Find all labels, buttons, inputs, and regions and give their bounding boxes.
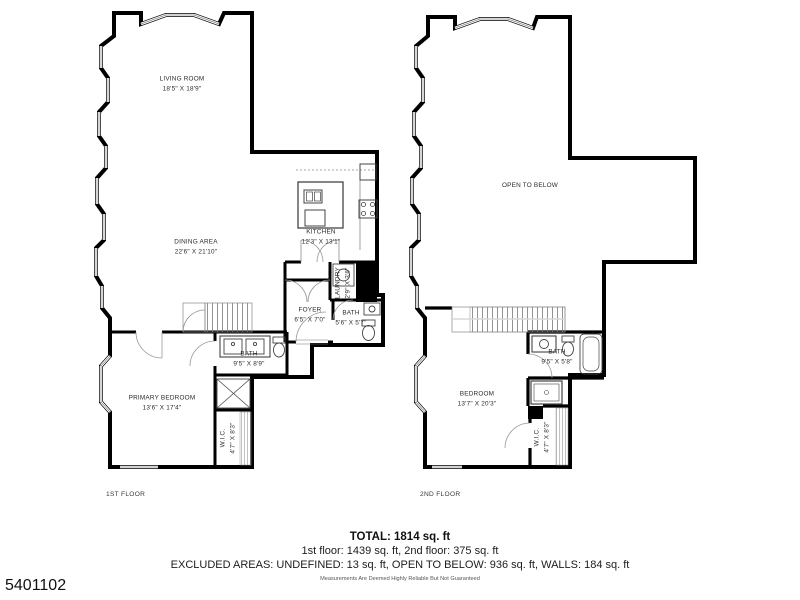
room-label-laundry: LAUNDRY 2'9" X 3'6" [333, 267, 352, 299]
room-label-open-to-below: OPEN TO BELOW [502, 181, 558, 191]
room-label-dining: DINING AREA 22'6" X 21'10" [174, 237, 217, 256]
room-label-primary-bedroom: PRIMARY BEDROOM 13'6" X 17'4" [129, 393, 196, 412]
excluded-areas: EXCLUDED AREAS: UNDEFINED: 13 sq. ft, OP… [0, 559, 800, 571]
exterior-wall [411, 17, 695, 467]
floor-name-2: 2ND FLOOR [420, 491, 460, 498]
door-arc [183, 310, 205, 332]
bedroom-door-arc [136, 332, 162, 358]
room-label-wic-2: W.I.C. 4'7" X 8'3" [532, 421, 551, 452]
shower-stall [531, 381, 562, 404]
total-area: TOTAL: 1814 sq. ft [0, 531, 800, 543]
room-label-bath-small: BATH 5'6" X 5'7" [335, 308, 366, 327]
wall-block-wic [528, 406, 543, 419]
wic-shelves [556, 408, 568, 465]
fridge [360, 164, 376, 180]
photo-id: 5401102 [5, 577, 66, 595]
second-floor-plan [411, 17, 695, 467]
room-label-bedroom-2: BEDROOM 13'7" X 20'3" [458, 389, 497, 408]
area-summary: TOTAL: 1814 sq. ft 1st floor: 1439 sq. f… [0, 531, 800, 582]
room-label-wic-1: W.I.C. 4'7" X 8'3" [218, 422, 237, 453]
floor-areas: 1st floor: 1439 sq. ft, 2nd floor: 375 s… [0, 545, 800, 557]
wall-block-laundry [356, 262, 377, 302]
room-label-foyer: FOYER 6'5" X 7'0" [294, 305, 325, 324]
room-label-living: LIVING ROOM 18'5" X 18'9" [160, 74, 205, 93]
door-arc [190, 341, 215, 366]
floor-plan-canvas [0, 0, 800, 600]
closet-door-arcs [285, 280, 330, 302]
stairs [183, 303, 252, 332]
floor-name-1: 1ST FLOOR [106, 491, 145, 498]
toilet-icon [273, 337, 285, 357]
range-icon [359, 200, 377, 218]
room-label-kitchen: KITCHEN 12'3" X 13'1" [302, 227, 341, 246]
room-label-bath-main: BATH 9'5" X 8'9" [233, 349, 264, 368]
wic-shelves [240, 412, 251, 465]
x-closet [217, 379, 250, 408]
stairs [452, 307, 565, 332]
door-arc [505, 423, 530, 448]
bathtub-icon [580, 334, 602, 374]
kitchen-fixtures [296, 164, 377, 262]
dishwasher [305, 210, 325, 226]
room-label-bath-2: BATH 9'5" X 5'8" [541, 347, 572, 366]
disclaimer: Measurements Are Deemed Highly Reliable … [0, 576, 800, 582]
